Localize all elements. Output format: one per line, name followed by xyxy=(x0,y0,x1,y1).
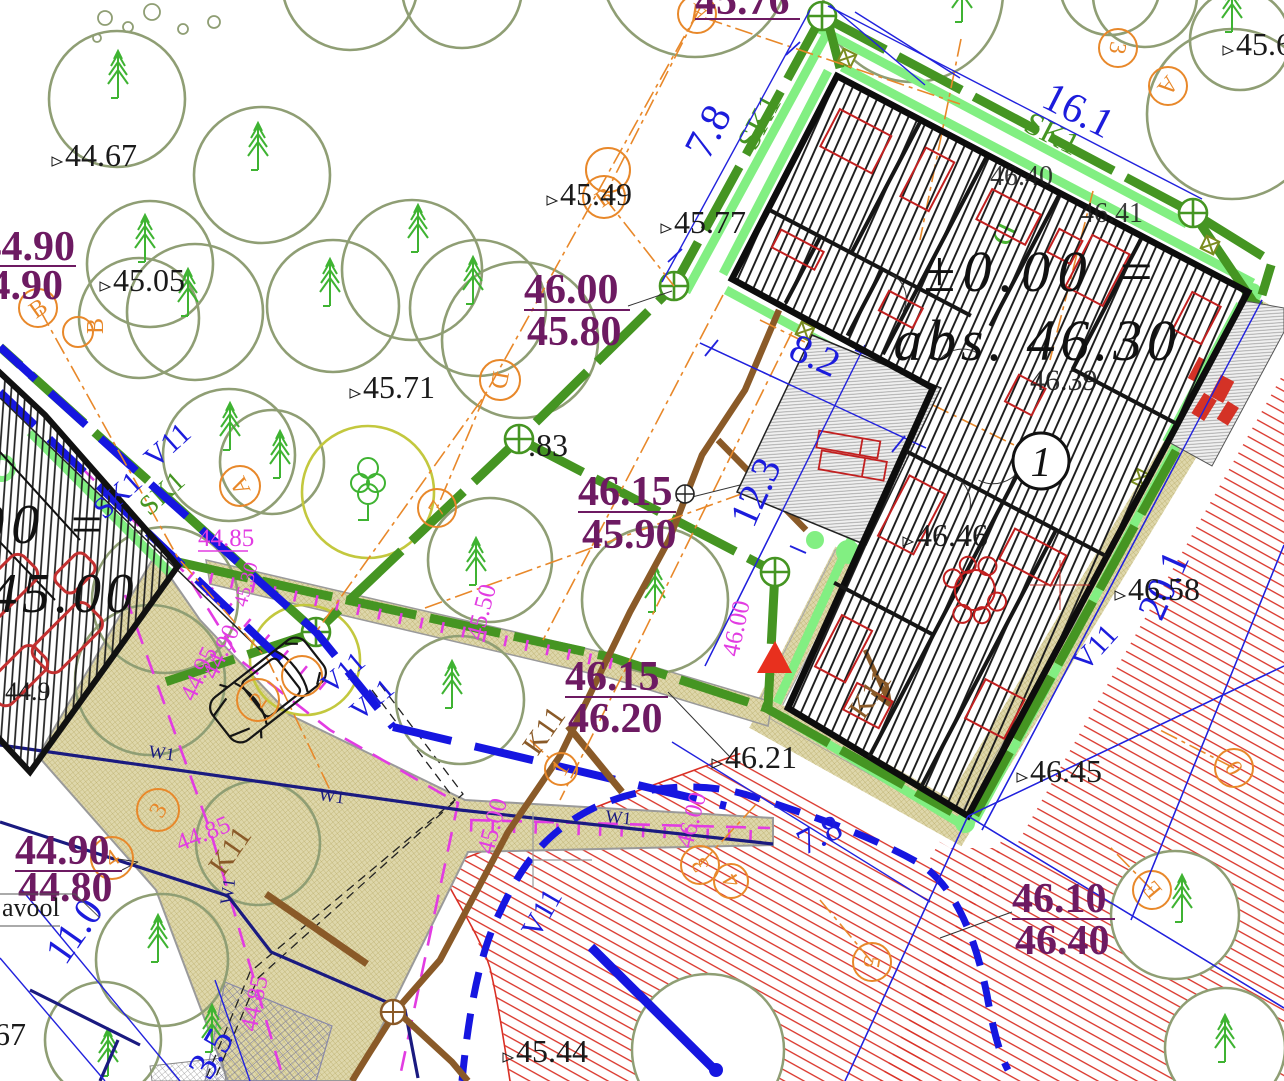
svg-text:1: 1 xyxy=(1031,440,1052,486)
svg-text:45.6: 45.6 xyxy=(1236,26,1284,62)
svg-text:46.46: 46.46 xyxy=(916,517,988,553)
svg-text:W1: W1 xyxy=(317,784,346,807)
svg-text:44.90: 44.90 xyxy=(0,263,63,309)
svg-text:avool: avool xyxy=(2,893,60,922)
svg-text:B: B xyxy=(83,318,109,334)
svg-text:±0.00 =: ±0.00 = xyxy=(923,239,1162,304)
svg-text:46.15: 46.15 xyxy=(578,469,673,515)
svg-text:46.10: 46.10 xyxy=(1012,876,1107,922)
svg-text:46.45: 46.45 xyxy=(1030,753,1102,789)
svg-text:45.76: 45.76 xyxy=(695,0,790,24)
svg-text:45.90: 45.90 xyxy=(582,512,677,558)
svg-text:45.80: 45.80 xyxy=(527,309,622,355)
svg-text:45.71: 45.71 xyxy=(363,369,435,405)
svg-text:45.44: 45.44 xyxy=(516,1033,588,1069)
svg-text:45.49: 45.49 xyxy=(560,176,632,212)
svg-text:45.77: 45.77 xyxy=(674,204,746,240)
svg-text:±0.00 =: ±0.00 = xyxy=(0,494,112,556)
svg-text:46.00: 46.00 xyxy=(524,267,619,313)
svg-text:abs. 45.00: abs. 45.00 xyxy=(0,563,138,625)
svg-text:46.41: 46.41 xyxy=(1080,198,1143,229)
svg-text:46.40: 46.40 xyxy=(990,161,1053,192)
svg-text:W1: W1 xyxy=(605,806,633,829)
svg-text:46.20: 46.20 xyxy=(568,696,663,742)
svg-text:W1: W1 xyxy=(216,877,239,905)
svg-text:44.67: 44.67 xyxy=(65,137,137,173)
svg-text:45.05: 45.05 xyxy=(113,262,185,298)
svg-text:44.85: 44.85 xyxy=(198,525,254,552)
svg-text:46.21: 46.21 xyxy=(725,739,797,775)
svg-text:.83: .83 xyxy=(528,427,568,463)
svg-text:W1: W1 xyxy=(147,741,176,764)
svg-text:44.9: 44.9 xyxy=(5,677,51,706)
svg-text:46.58: 46.58 xyxy=(1128,571,1200,607)
svg-text:45.67: 45.67 xyxy=(0,1016,26,1052)
svg-text:46.39: 46.39 xyxy=(1030,364,1098,397)
svg-text:46.15: 46.15 xyxy=(565,654,660,700)
svg-text:46.40: 46.40 xyxy=(1015,918,1110,964)
